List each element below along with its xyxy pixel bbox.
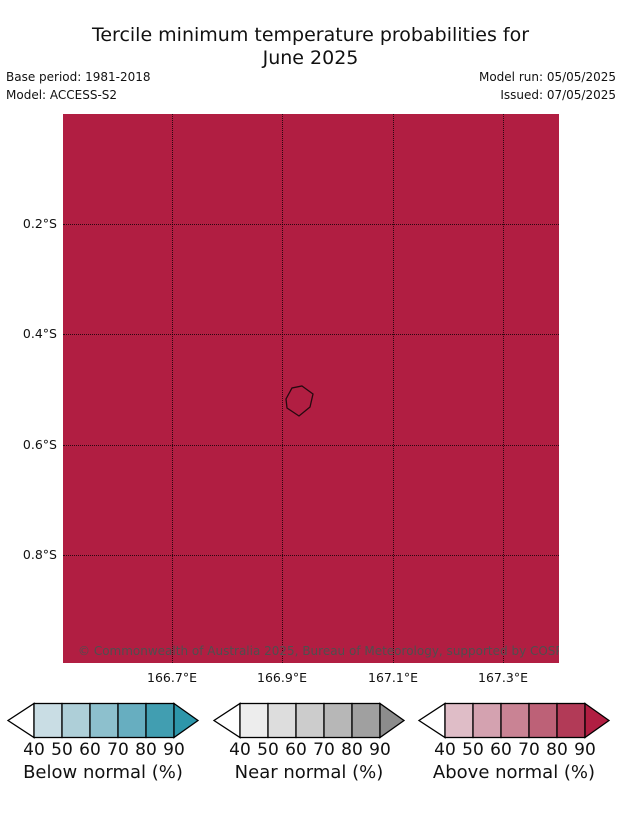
legend-segment: [296, 704, 324, 738]
legend-segment: [501, 704, 529, 738]
legend-above-normal: 405060708090 Above normal (%): [417, 702, 611, 797]
legend-tick-label: 70: [107, 740, 129, 760]
legend-right-arrow: [585, 704, 609, 738]
lon-tick-label: 166.9°E: [257, 670, 307, 686]
model-text: Model: ACCESS-S2: [6, 86, 151, 104]
legend-segment: [352, 704, 380, 738]
lat-tick-label: 0.6°S: [0, 437, 57, 453]
legend-tick-label: 70: [313, 740, 335, 760]
legend-tick-label: 90: [369, 740, 391, 760]
legend-tick-label: 40: [434, 740, 456, 760]
legend-tick-label: 80: [341, 740, 363, 760]
legend-segment: [240, 704, 268, 738]
lat-tick-label: 0.8°S: [0, 547, 57, 563]
legend-near-normal: 405060708090 Near normal (%): [212, 702, 406, 797]
legend-tick-label: 80: [546, 740, 568, 760]
legend-below-normal: 405060708090 Below normal (%): [6, 702, 200, 797]
legend-tick-label: 40: [23, 740, 45, 760]
legend-left-arrow: [214, 704, 240, 738]
legend-tick-label: 90: [163, 740, 185, 760]
legend-segment: [324, 704, 352, 738]
legend-segment: [268, 704, 296, 738]
base-period-text: Base period: 1981-2018: [6, 68, 151, 86]
colorbar-near-normal: [212, 702, 406, 739]
lat-tick-label: 0.4°S: [0, 326, 57, 342]
legend-segment: [146, 704, 174, 738]
legend-tick-label: 80: [135, 740, 157, 760]
lon-tick-label: 167.1°E: [368, 670, 418, 686]
legend-tick-label: 60: [79, 740, 101, 760]
issued-text: Issued: 07/05/2025: [479, 86, 616, 104]
legend-right-arrow: [380, 704, 404, 738]
legend-segment: [90, 704, 118, 738]
title-line-1: Tercile minimum temperature probabilitie…: [0, 24, 621, 47]
figure: Tercile minimum temperature probabilitie…: [0, 0, 621, 839]
lon-tick-label: 166.7°E: [147, 670, 197, 686]
legend-segment: [34, 704, 62, 738]
legend-tick-label: 50: [257, 740, 279, 760]
island-outline: [63, 114, 559, 663]
colorbar-below-normal: [6, 702, 200, 739]
header-meta-left: Base period: 1981-2018 Model: ACCESS-S2: [6, 68, 151, 104]
legend-tick-label: 60: [285, 740, 307, 760]
legend-label: Above normal (%): [417, 762, 611, 783]
legend-tick-label: 60: [490, 740, 512, 760]
legend-right-arrow: [174, 704, 198, 738]
legend-tick-label: 40: [229, 740, 251, 760]
legend-left-arrow: [419, 704, 445, 738]
colorbar-ticks: 405060708090: [417, 739, 611, 760]
island-outline-path: [286, 386, 313, 416]
title-line-2: June 2025: [0, 47, 621, 70]
legend-segment: [473, 704, 501, 738]
legend-segment: [62, 704, 90, 738]
legend-label: Below normal (%): [6, 762, 200, 783]
header-meta-right: Model run: 05/05/2025 Issued: 07/05/2025: [479, 68, 616, 104]
legend-tick-label: 70: [518, 740, 540, 760]
figure-title: Tercile minimum temperature probabilitie…: [0, 24, 621, 70]
model-run-text: Model run: 05/05/2025: [479, 68, 616, 86]
colorbar-above-normal: [417, 702, 611, 739]
legend-segment: [529, 704, 557, 738]
colorbar-ticks: 405060708090: [212, 739, 406, 760]
legend-tick-label: 50: [462, 740, 484, 760]
legend-label: Near normal (%): [212, 762, 406, 783]
copyright-text: © Commonwealth of Australia 2025, Bureau…: [78, 644, 559, 658]
legend-tick-label: 90: [574, 740, 596, 760]
legend-tick-label: 50: [51, 740, 73, 760]
lon-tick-label: 167.3°E: [478, 670, 528, 686]
legend-segment: [118, 704, 146, 738]
legend-left-arrow: [8, 704, 34, 738]
lat-tick-label: 0.2°S: [0, 216, 57, 232]
legend-segment: [445, 704, 473, 738]
map-area: © Commonwealth of Australia 2025, Bureau…: [63, 114, 559, 663]
legend-segment: [557, 704, 585, 738]
colorbar-ticks: 405060708090: [6, 739, 200, 760]
